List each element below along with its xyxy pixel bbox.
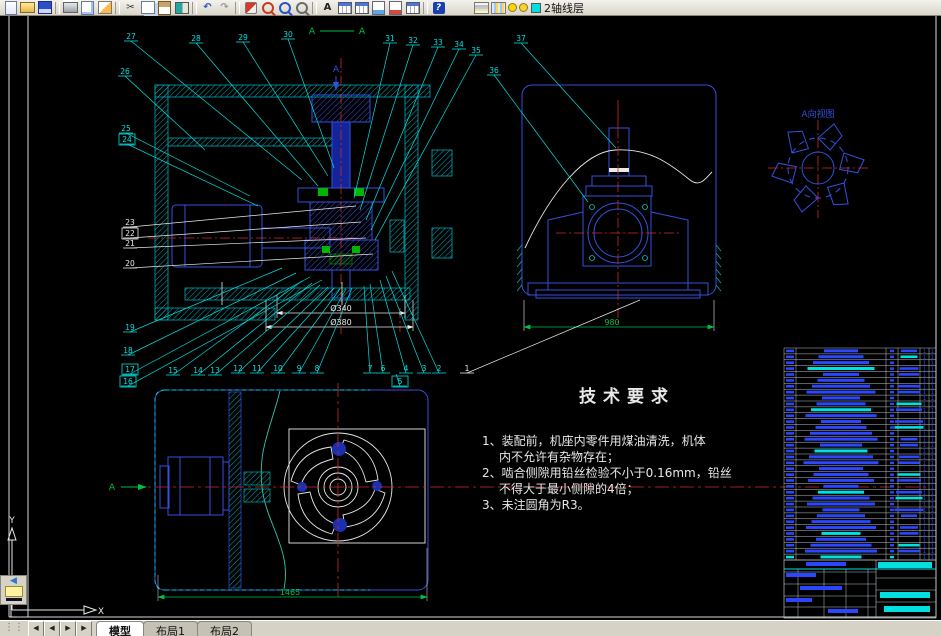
tech-req-line: 不得大于最小侧隙的4倍； xyxy=(482,481,772,497)
plot-preview-icon[interactable] xyxy=(79,1,96,15)
balloon-16[interactable]: 16 xyxy=(120,376,136,387)
palette-arrow-icon[interactable]: ◀ xyxy=(10,577,17,585)
section-a-right[interactable]: A xyxy=(359,27,366,37)
balloon-8[interactable]: 8 xyxy=(310,364,324,373)
zoom-window-icon[interactable] xyxy=(276,1,293,15)
svg-text:24: 24 xyxy=(122,135,132,144)
svg-text:30: 30 xyxy=(283,30,293,39)
standard-toolbar: ✂↶↷A?2轴线层 xyxy=(0,0,941,16)
section-a-left[interactable]: A xyxy=(309,27,316,37)
svg-text:32: 32 xyxy=(408,36,418,45)
svg-text:35: 35 xyxy=(471,46,481,55)
tech-req-title: 技术要求 xyxy=(482,382,772,407)
dim-planview[interactable]: 1465 xyxy=(280,588,300,597)
layer-previous-icon[interactable] xyxy=(490,1,507,15)
balloon-27[interactable]: 27 xyxy=(124,32,138,41)
table-style-icon[interactable] xyxy=(336,1,353,15)
balloon-19[interactable]: 19 xyxy=(123,323,137,332)
balloon-1[interactable]: 1 xyxy=(460,364,474,373)
cad-drawing[interactable]: 2728293031323334353637262524232221201918… xyxy=(0,16,941,620)
ucs-y-label[interactable]: Y xyxy=(8,516,15,526)
tab-nav-1[interactable]: ◀ xyxy=(44,621,60,636)
save-icon[interactable] xyxy=(36,1,53,15)
markup-icon[interactable] xyxy=(387,1,404,15)
balloon-37[interactable]: 37 xyxy=(514,34,528,43)
svg-text:33: 33 xyxy=(433,38,443,47)
svg-text:3: 3 xyxy=(422,364,427,373)
sheet-border xyxy=(9,16,936,617)
tab-模型[interactable]: 模型 xyxy=(96,621,144,636)
publish-icon[interactable] xyxy=(96,1,113,15)
pan-realtime-icon[interactable] xyxy=(242,1,259,15)
balloon-6[interactable]: 6 xyxy=(376,364,390,373)
zoom-previous-icon[interactable] xyxy=(293,1,310,15)
balloon-34[interactable]: 34 xyxy=(452,40,466,49)
layer-name[interactable]: 2轴线层 xyxy=(544,0,584,16)
svg-text:36: 36 xyxy=(489,66,499,75)
svg-text:25: 25 xyxy=(121,124,131,133)
balloon-3[interactable]: 3 xyxy=(417,364,431,373)
svg-text:9: 9 xyxy=(297,364,302,373)
grid-icon[interactable] xyxy=(404,1,421,15)
tech-req-line: 内不允许有杂物存在； xyxy=(482,449,772,465)
toolbar-separator xyxy=(312,2,317,14)
match-properties-icon[interactable] xyxy=(173,1,190,15)
qnew-icon[interactable] xyxy=(2,1,19,15)
undo-icon[interactable]: ↶ xyxy=(199,1,216,15)
title-block[interactable] xyxy=(784,560,936,618)
balloon-17[interactable]: 17 xyxy=(122,364,138,375)
zoom-realtime-icon[interactable] xyxy=(259,1,276,15)
svg-text:18: 18 xyxy=(123,346,133,355)
svg-text:12: 12 xyxy=(233,364,243,373)
cut-icon[interactable]: ✂ xyxy=(122,1,139,15)
svg-text:10: 10 xyxy=(273,364,283,373)
tech-req-items: 1、装配前，机座内零件用煤油清洗，机体内不允许有杂物存在；2、啮合侧隙用铅丝检验… xyxy=(482,433,772,513)
svg-text:13: 13 xyxy=(210,366,220,375)
end-view[interactable] xyxy=(517,85,721,331)
svg-text:16: 16 xyxy=(123,377,133,386)
layer-properties-icon[interactable] xyxy=(473,1,490,15)
balloon-25[interactable]: 25 xyxy=(119,124,133,133)
svg-text:31: 31 xyxy=(385,34,395,43)
tab-nav-0[interactable]: ◀ xyxy=(28,621,44,636)
balloon-30[interactable]: 30 xyxy=(281,30,295,39)
help-icon[interactable]: ? xyxy=(430,1,447,15)
balloon-29[interactable]: 29 xyxy=(236,33,250,42)
plot-icon[interactable] xyxy=(62,1,79,15)
toolbar-separator xyxy=(235,2,240,14)
tab-布局2[interactable]: 布局2 xyxy=(197,621,252,636)
open-icon[interactable] xyxy=(19,1,36,15)
cutter-detail-view[interactable] xyxy=(768,120,868,218)
view-labels[interactable]: AAAA向视图AØ340Ø3809801465YX xyxy=(8,27,834,617)
balloon-26[interactable]: 26 xyxy=(118,67,132,76)
svg-text:19: 19 xyxy=(125,323,135,332)
balloon-14[interactable]: 14 xyxy=(191,366,205,375)
balloon-5[interactable]: 5 xyxy=(392,376,408,387)
layout-tab-bar: ⋮⋮ ◀◀▶▶ 模型布局1布局2 xyxy=(0,620,941,636)
redo-icon[interactable]: ↷ xyxy=(216,1,233,15)
svg-text:14: 14 xyxy=(193,366,203,375)
balloon-4[interactable]: 4 xyxy=(399,364,413,373)
tech-req-line: 2、啮合侧隙用铅丝检验不小于0.16mm，铅丝 xyxy=(482,465,772,481)
toolbar-separator xyxy=(115,2,120,14)
copy-icon[interactable] xyxy=(139,1,156,15)
section-arrow-a[interactable]: A xyxy=(333,65,340,75)
dim-phi380[interactable]: Ø380 xyxy=(330,317,352,327)
balloon-32[interactable]: 32 xyxy=(406,36,420,45)
detail-view-label[interactable]: A向视图 xyxy=(801,108,834,120)
balloon-23[interactable]: 23 xyxy=(123,218,137,227)
toolbar-separator xyxy=(192,2,197,14)
svg-text:29: 29 xyxy=(238,33,248,42)
paste-icon[interactable] xyxy=(156,1,173,15)
balloon-21[interactable]: 21 xyxy=(123,239,137,248)
tab-nav-3[interactable]: ▶ xyxy=(76,621,92,636)
balloon-31[interactable]: 31 xyxy=(383,34,397,43)
balloon-9[interactable]: 9 xyxy=(292,364,306,373)
balloon-28[interactable]: 28 xyxy=(189,34,203,43)
svg-text:28: 28 xyxy=(191,34,201,43)
docked-toolbar-fragment[interactable]: ◀ xyxy=(0,575,27,605)
svg-text:23: 23 xyxy=(125,218,135,227)
dim-endview[interactable]: 980 xyxy=(604,318,619,327)
tab-布局1[interactable]: 布局1 xyxy=(143,621,198,636)
svg-text:37: 37 xyxy=(516,34,526,43)
svg-text:1: 1 xyxy=(465,364,470,373)
balloon-10[interactable]: 10 xyxy=(271,364,285,373)
balloon-24[interactable]: 24 xyxy=(119,134,135,145)
layer-color-chip[interactable] xyxy=(531,3,541,13)
balloon-35[interactable]: 35 xyxy=(469,46,483,55)
bom-table[interactable]: 1111111111111111111111111111111111111111… xyxy=(784,348,936,561)
layout-tabs: 模型布局1布局2 xyxy=(96,621,251,636)
svg-text:7: 7 xyxy=(368,364,373,373)
drawing-area[interactable]: 2728293031323334353637262524232221201918… xyxy=(0,16,941,620)
text-style-icon[interactable]: A xyxy=(319,1,336,15)
svg-text:34: 34 xyxy=(454,40,464,49)
svg-text:17: 17 xyxy=(125,365,135,374)
svg-text:8: 8 xyxy=(315,364,320,373)
balloon-7[interactable]: 7 xyxy=(363,364,377,373)
plan-section-a[interactable]: A xyxy=(109,483,116,493)
svg-text:6: 6 xyxy=(381,364,386,373)
balloon-36[interactable]: 36 xyxy=(487,66,501,75)
balloon-33[interactable]: 33 xyxy=(431,38,445,47)
balloon-2[interactable]: 2 xyxy=(432,364,446,373)
tab-nav-2[interactable]: ▶ xyxy=(60,621,76,636)
svg-text:27: 27 xyxy=(126,32,136,41)
dim-phi340[interactable]: Ø340 xyxy=(330,303,352,313)
table-edit-icon[interactable] xyxy=(353,1,370,15)
balloon-15[interactable]: 15 xyxy=(166,366,180,375)
svg-text:21: 21 xyxy=(125,239,135,248)
balloon-18[interactable]: 18 xyxy=(121,346,135,355)
sheet-set-icon[interactable] xyxy=(370,1,387,15)
balloon-11[interactable]: 11 xyxy=(250,364,264,373)
balloon-20[interactable]: 20 xyxy=(123,259,137,268)
tech-req-line: 3、未注圆角为R3。 xyxy=(482,497,772,513)
svg-text:26: 26 xyxy=(120,67,130,76)
palette-swatch-icon[interactable] xyxy=(5,586,23,597)
autocad-window: ✂↶↷A?2轴线层 xyxy=(0,0,941,636)
svg-text:2: 2 xyxy=(437,364,442,373)
svg-text:4: 4 xyxy=(404,364,409,373)
technical-requirements[interactable]: 技术要求 1、装配前，机座内零件用煤油清洗，机体内不允许有杂物存在；2、啮合侧隙… xyxy=(482,382,772,513)
tech-req-line: 1、装配前，机座内零件用煤油清洗，机体 xyxy=(482,433,772,449)
svg-text:11: 11 xyxy=(252,364,262,373)
toolbar-separator xyxy=(55,2,60,14)
palette-bar-icon xyxy=(6,598,22,601)
layer-bulb-icon[interactable] xyxy=(508,3,517,12)
toolbar-grip[interactable]: ⋮⋮ xyxy=(0,621,28,635)
svg-text:5: 5 xyxy=(398,377,403,386)
svg-text:15: 15 xyxy=(168,366,178,375)
toolbar-separator xyxy=(423,2,428,14)
ucs-x-label[interactable]: X xyxy=(98,607,104,617)
layer-freeze-icon[interactable] xyxy=(519,3,528,12)
svg-text:20: 20 xyxy=(125,259,135,268)
svg-text:22: 22 xyxy=(125,229,135,238)
